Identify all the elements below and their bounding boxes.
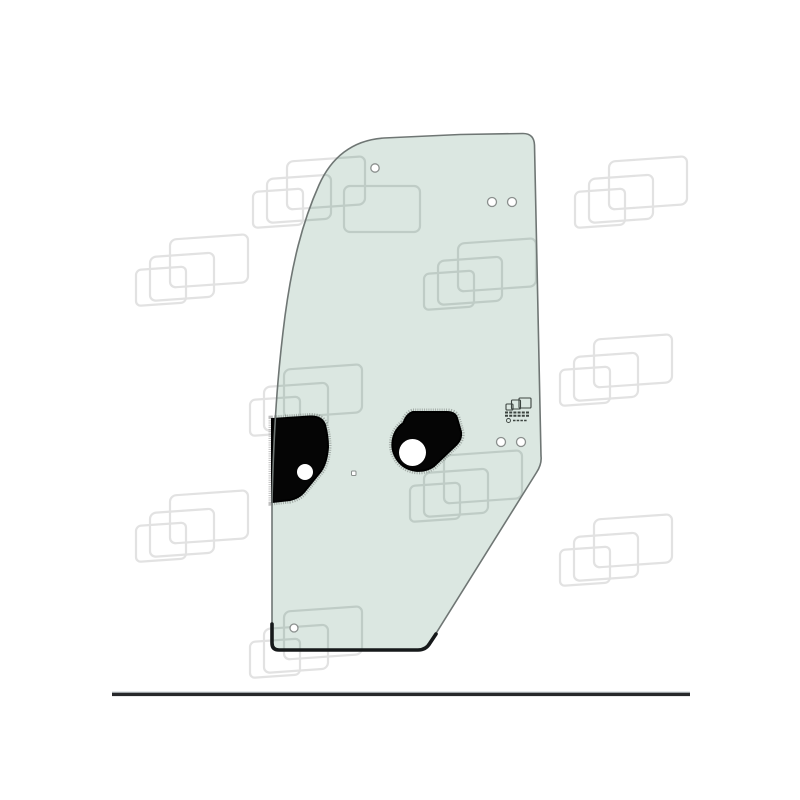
- mounting-hole-top-right-2: [508, 198, 517, 207]
- product-image: [0, 0, 800, 800]
- footer-divider-rule: [112, 693, 690, 696]
- patch-hole: [297, 464, 313, 480]
- door-glass-illustration: [0, 0, 800, 800]
- glass-panel: [272, 134, 541, 651]
- watermark-motif: [560, 334, 672, 406]
- alignment-hole-center: [352, 471, 357, 476]
- watermark-motif: [136, 490, 248, 562]
- mounting-hole-top-right-1: [488, 198, 497, 207]
- watermark-motif: [575, 156, 687, 228]
- mounting-hole-mid-right-2: [517, 438, 526, 447]
- mounting-hole-mid-right-1: [497, 438, 506, 447]
- footer-divider-highlight: [112, 692, 690, 693]
- watermark-motif: [136, 234, 248, 306]
- watermark-motif: [560, 514, 672, 586]
- handle-hole: [399, 439, 426, 466]
- mounting-hole-bottom-left: [290, 624, 298, 632]
- mounting-hole-top-left: [371, 164, 379, 172]
- footer-divider: [112, 692, 690, 697]
